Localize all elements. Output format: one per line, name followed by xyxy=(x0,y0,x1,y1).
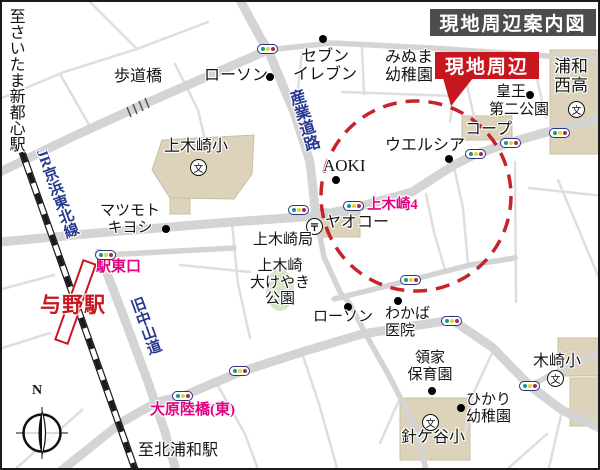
school-icon: 文 xyxy=(190,159,207,176)
location-dot-aoki xyxy=(332,176,340,184)
label-yaoko: ヤオコー xyxy=(325,214,389,232)
school-icon: 文 xyxy=(568,101,585,118)
traffic-light-icon xyxy=(400,275,421,285)
label-to-kita-urawa: 至北浦和駅 xyxy=(138,442,218,460)
site-badge: 現地周辺 xyxy=(435,52,539,79)
traffic-light-icon xyxy=(465,149,486,159)
location-dot-wakaba xyxy=(394,297,402,305)
label-line: 浦和 xyxy=(551,58,591,77)
traffic-light-icon xyxy=(549,128,570,138)
label-aoki: AOKI xyxy=(323,157,366,176)
label-okeyaki-park: 上木崎 大けやき 公園 xyxy=(247,258,313,308)
compass-rose xyxy=(16,407,68,459)
label-lawson-south: ローソン xyxy=(313,309,373,326)
label-line: マツモト xyxy=(98,203,162,220)
location-dot-kozan-park xyxy=(526,91,534,99)
label-line: 医院 xyxy=(385,323,430,340)
label-lawson-north: ローソン xyxy=(204,67,268,85)
school-glyph: 文 xyxy=(194,160,204,175)
location-dot-hikari xyxy=(457,404,465,412)
label-line: 西高 xyxy=(551,77,591,96)
label-station-east-exit: 駅東口 xyxy=(96,259,141,276)
label-kozan: 皇王 xyxy=(496,84,526,101)
label-line: 幼稚園 xyxy=(385,67,433,85)
label-ryoke-nursery: 領家 保育園 xyxy=(398,350,462,383)
traffic-light-icon xyxy=(500,138,521,148)
compass-north-label: N xyxy=(32,383,42,398)
label-wakaba-clinic: わかば 医院 xyxy=(385,306,430,339)
label-to-saitama-shintoshin: 至さいたま新都心駅 xyxy=(6,8,24,152)
label-daini-park: 第二公園 xyxy=(489,102,549,119)
label-kamikizaki-4: 上木崎4 xyxy=(367,198,418,214)
label-minuma-kindergarten: みぬま 幼稚園 xyxy=(385,49,433,84)
label-urawa-nishi-high: 浦和 西高 xyxy=(551,58,591,95)
label-line: わかば xyxy=(385,306,430,323)
label-hikari-kindergarten: ひかり 幼稚園 xyxy=(466,392,511,425)
label-line: キヨシ xyxy=(98,220,162,237)
traffic-light-icon xyxy=(95,250,116,260)
label-coop: コープ xyxy=(465,121,512,139)
label-seven-eleven: セブン イレブン xyxy=(288,48,362,83)
label-welcia: ウエルシア xyxy=(385,137,465,155)
label-line: 幼稚園 xyxy=(466,409,511,426)
school-glyph: 文 xyxy=(572,102,582,117)
label-line: 公園 xyxy=(247,291,313,308)
traffic-light-icon xyxy=(257,44,278,54)
area-guide-map: 現地周辺案内図 現地周辺 文 文 文 文 〒 至さいたま新都心駅 歩道橋 ローソ… xyxy=(0,0,600,470)
label-kizaki-elementary: 木崎小 xyxy=(533,353,581,371)
location-dot-matsumoto xyxy=(162,225,170,233)
traffic-light-icon xyxy=(172,391,193,401)
label-line: 大けやき xyxy=(247,275,313,292)
location-dot-welcia xyxy=(445,155,453,163)
school-icon: 文 xyxy=(547,370,564,387)
location-dot-seven-eleven xyxy=(319,35,327,43)
map-title: 現地周辺案内図 xyxy=(430,9,596,36)
label-pedestrian-bridge: 歩道橋 xyxy=(114,68,162,86)
label-line: 領家 xyxy=(398,350,462,367)
label-kamikizaki-post-office: 上木崎局 xyxy=(253,232,313,249)
label-line: セブン xyxy=(288,48,362,66)
traffic-light-icon xyxy=(441,316,462,326)
label-line: 保育園 xyxy=(398,367,462,384)
school-glyph: 文 xyxy=(551,371,561,386)
label-line: ひかり xyxy=(466,392,511,409)
label-line: 上木崎 xyxy=(247,258,313,275)
label-ohara-overpass-east: 大原陸橋(東) xyxy=(150,402,235,419)
label-kamikizaki-elementary: 上木崎小 xyxy=(164,138,228,156)
label-harigaya-elementary: 針ケ谷小 xyxy=(401,429,465,447)
label-yono-station: 与野駅 xyxy=(40,294,106,317)
location-dot-ryoke xyxy=(428,387,436,395)
traffic-light-icon xyxy=(288,205,309,215)
traffic-light-icon xyxy=(343,201,364,211)
traffic-light-icon xyxy=(229,366,250,376)
school-glyph: 文 xyxy=(426,415,436,430)
label-line: みぬま xyxy=(385,49,433,67)
label-matsumoto-kiyoshi: マツモト キヨシ xyxy=(98,203,162,236)
label-line: イレブン xyxy=(288,66,362,84)
traffic-light-icon xyxy=(519,381,540,391)
